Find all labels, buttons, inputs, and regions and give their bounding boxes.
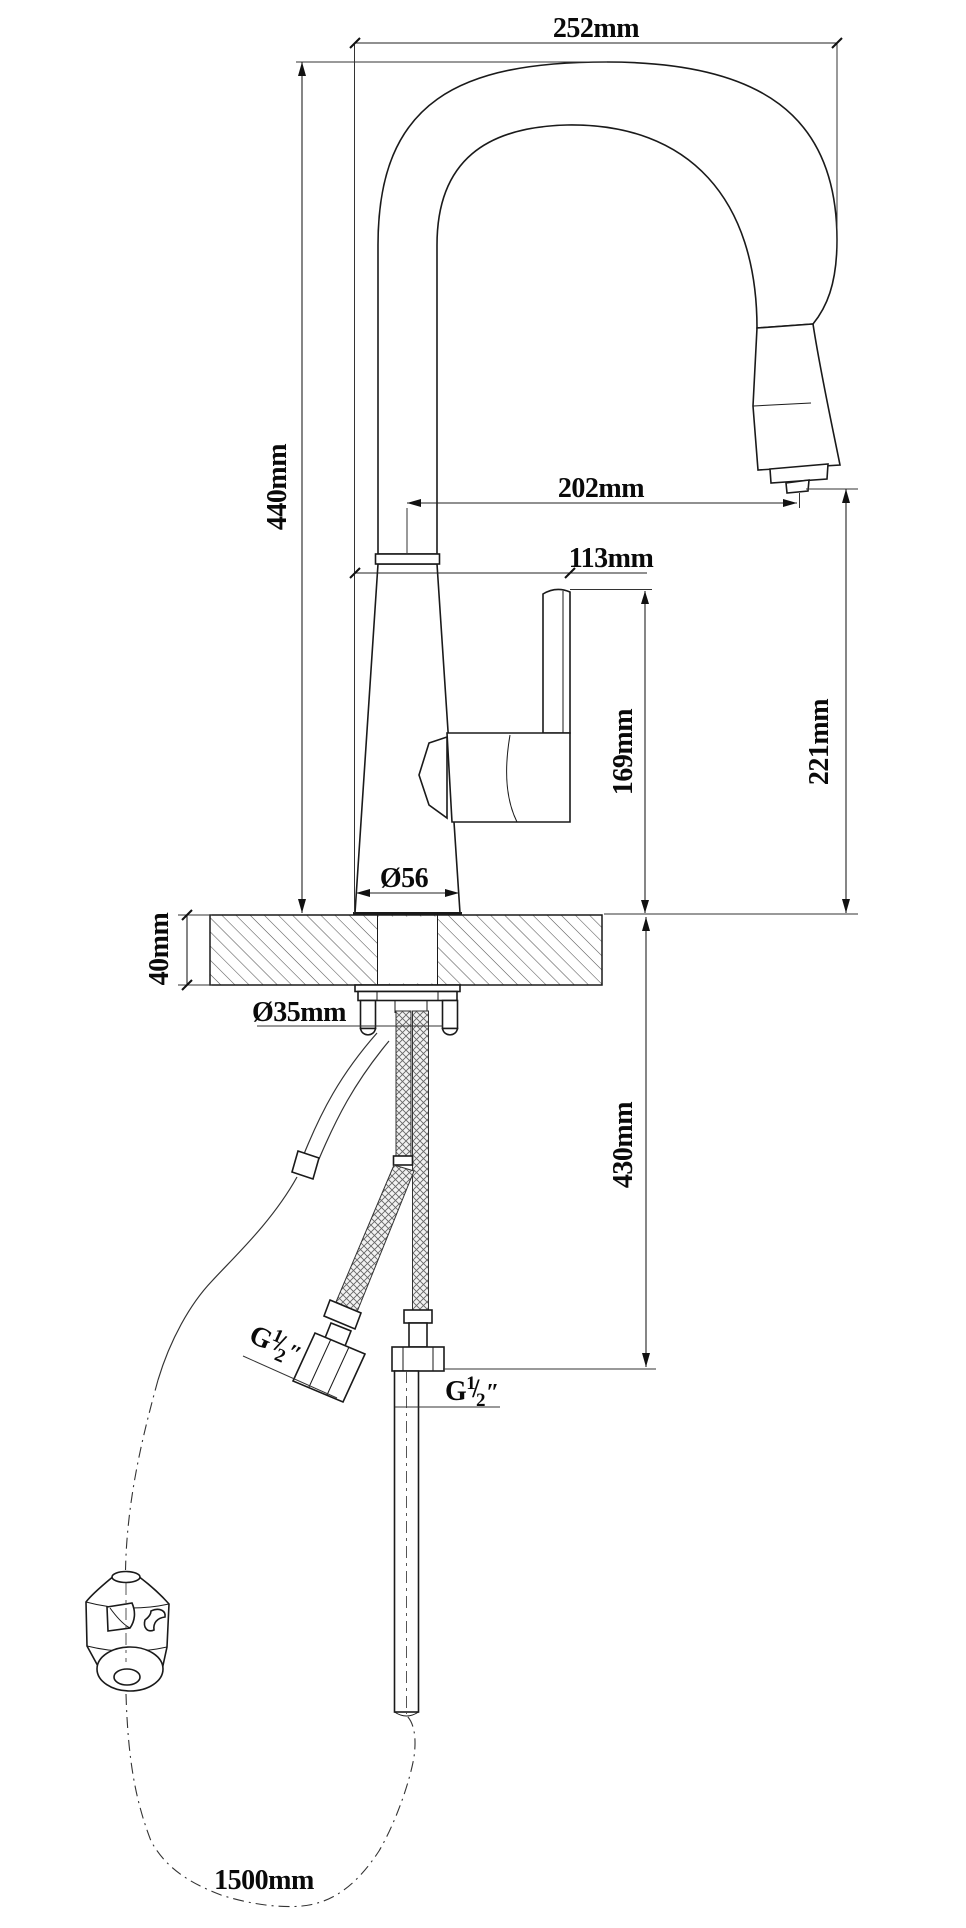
braided-hose-diagonal [336, 1165, 414, 1312]
braided-hose-center [413, 1011, 429, 1311]
hex-nut-center [392, 1347, 444, 1371]
spray-hose-cap [292, 1151, 319, 1179]
weight-top-face [112, 1572, 140, 1583]
hose-collar-center [404, 1310, 432, 1323]
stud-cap-left [361, 1029, 376, 1035]
braided-hose-left [396, 1011, 411, 1157]
label-thread-left: G1/2″ [243, 1316, 308, 1373]
mounting-hole [378, 917, 437, 984]
hose-loop-left [126, 1380, 159, 1570]
dim-221-arrow-bottom [842, 899, 850, 913]
dim-169-arrow-top [641, 591, 649, 604]
drawing-page: 252mm 440mm 202mm 113mm 221mm 169mm Ø56 … [0, 0, 966, 1928]
label-handle-height: 169mm [608, 709, 639, 795]
countertop-section [210, 915, 602, 985]
hose-weight [86, 1572, 169, 1692]
thread-bottom-prefix: G [445, 1376, 467, 1407]
dim-202-arrow-right [783, 499, 797, 507]
label-hole-diameter: Ø35mm [252, 997, 346, 1028]
dim-430-arrow-top [642, 917, 650, 931]
label-spout-width: 252mm [553, 13, 639, 44]
label-outlet-reach: 202mm [558, 473, 644, 504]
weight-window-left [107, 1603, 134, 1631]
dim-430-arrow-bottom [642, 1353, 650, 1367]
spray-head [753, 324, 840, 470]
mounting-washer [355, 985, 460, 992]
hose-ferrule [394, 1156, 413, 1165]
mounting-bracket [358, 992, 457, 1001]
label-base-diameter: Ø56 [380, 863, 429, 894]
label-overall-height: 440mm [262, 444, 293, 530]
label-outlet-height: 221mm [804, 699, 835, 785]
supply-hoses [293, 1011, 444, 1716]
label-handle-reach: 113mm [569, 543, 654, 574]
dim-440-arrow-top [298, 62, 306, 76]
aerator-tip [786, 480, 809, 493]
label-hose-length: 1500mm [214, 1865, 314, 1896]
spout-flange [376, 554, 440, 564]
label-thread-bottom: G1/2″ [445, 1373, 499, 1411]
mounting-stud-right [443, 1001, 458, 1029]
faucet-technical-drawing: 252mm 440mm 202mm 113mm 221mm 169mm Ø56 … [0, 0, 966, 1928]
stud-cap-right [443, 1029, 458, 1035]
handle-lever [543, 589, 570, 733]
label-under-counter-drop: 430mm [608, 1102, 639, 1188]
label-counter-thickness: 40mm [144, 913, 175, 986]
dim-169-arrow-bottom [641, 900, 649, 913]
thread-bottom-inch: ″ [486, 1380, 499, 1406]
hose-neck-center [409, 1323, 427, 1347]
dim-221-arrow-top [842, 489, 850, 503]
spray-hose-outer [304, 1033, 377, 1154]
mounting-stud-left [361, 1001, 376, 1029]
dim-440-arrow-bottom [298, 899, 306, 913]
spray-hose-loop [86, 1033, 415, 1907]
thread-bottom-denominator: 2 [476, 1390, 485, 1411]
weight-bottom-hole [114, 1669, 140, 1685]
